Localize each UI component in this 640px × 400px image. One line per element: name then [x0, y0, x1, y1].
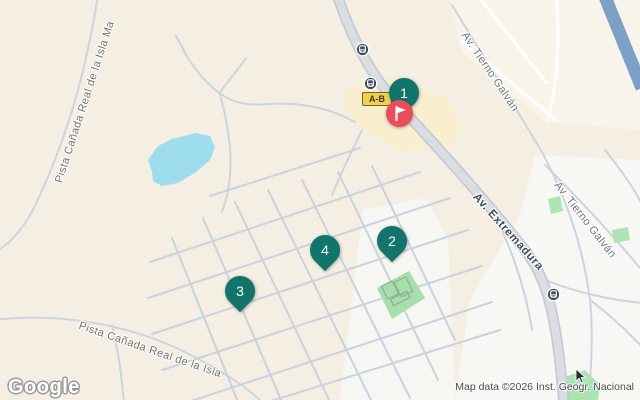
map-attribution: Map data ©2026 Inst. Geogr. Nacional — [455, 381, 634, 393]
map-pin-4-label: 4 — [310, 235, 340, 265]
map-viewport[interactable]: Pista Cañada Real de la Isla Ma Pista Ca… — [0, 0, 640, 400]
bus-stop-icon[interactable] — [546, 287, 561, 302]
bus-stop-icon[interactable] — [355, 42, 370, 57]
map-pin-2-label: 2 — [377, 226, 407, 256]
map-pin-3-label: 3 — [225, 276, 255, 306]
bus-stop-icon[interactable] — [363, 76, 378, 91]
map-pin-3[interactable]: 3 — [219, 270, 261, 312]
map-pin-2[interactable]: 2 — [371, 220, 413, 262]
google-logo[interactable]: Google — [8, 376, 80, 399]
destination-flag-icon[interactable] — [386, 100, 413, 127]
map-canvas[interactable] — [0, 0, 640, 400]
map-pin-4[interactable]: 4 — [304, 229, 346, 271]
